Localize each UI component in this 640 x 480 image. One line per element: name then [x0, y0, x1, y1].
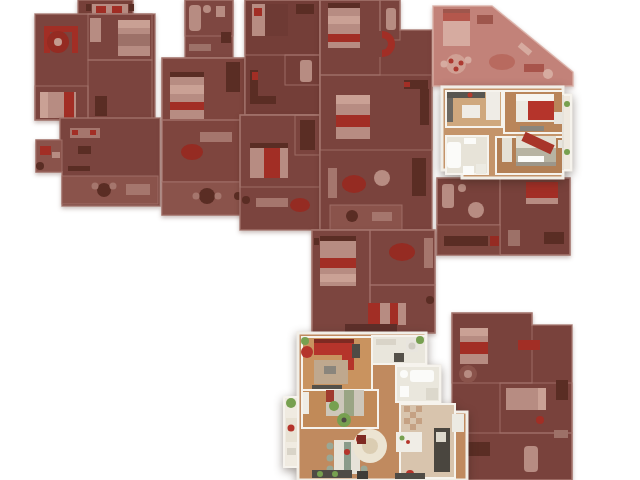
stove — [468, 93, 473, 98]
planter — [345, 324, 397, 332]
headboard — [516, 162, 556, 166]
side-table — [287, 448, 296, 455]
cabinet — [394, 353, 404, 362]
rug — [342, 175, 366, 193]
unit-left-col2[interactable] — [162, 58, 245, 215]
bed-linen — [170, 85, 204, 94]
blanket — [118, 34, 150, 46]
fridge — [490, 236, 499, 246]
headboard — [443, 9, 470, 13]
balcony-table — [199, 188, 215, 204]
pillow — [516, 94, 554, 101]
dresser — [518, 340, 540, 350]
tv-stand — [312, 385, 342, 389]
cushion — [288, 425, 295, 432]
plant — [564, 101, 570, 107]
bathtub — [189, 5, 201, 31]
rug — [489, 54, 515, 70]
bathtub — [410, 370, 434, 382]
chair — [327, 455, 334, 462]
pillow — [538, 388, 546, 410]
bathtub — [442, 184, 454, 208]
bathtub — [524, 446, 538, 472]
side-table — [357, 435, 366, 444]
plate — [449, 59, 454, 64]
dresser — [554, 430, 568, 438]
rug — [181, 144, 203, 160]
bed-linen — [460, 328, 488, 336]
appliance — [404, 82, 410, 87]
throw — [320, 258, 356, 268]
bed-linen — [320, 274, 356, 282]
unit-center-mid[interactable] — [240, 115, 320, 230]
bathtub — [386, 8, 396, 30]
plant — [416, 336, 424, 344]
cabinet — [468, 442, 490, 456]
shower — [426, 388, 438, 400]
headboard — [328, 3, 360, 8]
balcony-table — [97, 183, 111, 197]
plate — [344, 449, 350, 455]
lounge — [126, 184, 150, 195]
fridge — [452, 414, 464, 432]
chair — [193, 193, 200, 200]
throw — [328, 34, 360, 42]
kitchen-counter — [444, 236, 488, 246]
tile — [404, 418, 410, 424]
throw — [64, 92, 74, 118]
bathtub — [300, 60, 312, 82]
unit-center-lower[interactable] — [312, 230, 435, 333]
blanket — [264, 148, 280, 178]
nightstand — [86, 4, 91, 11]
plant — [317, 471, 323, 477]
shelf — [189, 44, 211, 51]
bed-linen — [526, 198, 558, 204]
kitchen-counter — [447, 98, 453, 122]
curved-sofa-cut — [366, 31, 382, 57]
unit-right-mid[interactable] — [437, 178, 570, 255]
pillow — [326, 390, 334, 402]
bed-linen — [328, 16, 360, 24]
unit-top-left[interactable] — [35, 14, 155, 120]
unit-left-lower[interactable] — [36, 118, 160, 206]
chair — [110, 183, 117, 190]
throw — [170, 102, 204, 110]
shelf — [376, 339, 396, 345]
chair — [92, 183, 99, 190]
pillow — [40, 92, 48, 118]
cabinet — [303, 392, 309, 414]
dresser — [95, 96, 107, 116]
kitchen-counter — [420, 89, 429, 125]
blanket — [336, 115, 370, 127]
plant — [400, 436, 405, 441]
desk — [352, 344, 360, 358]
blanket — [460, 342, 488, 354]
island — [462, 105, 480, 118]
kitchen-counter — [412, 158, 426, 196]
sofa — [72, 26, 78, 53]
sofa-back — [314, 339, 354, 343]
sideboard — [524, 64, 544, 72]
table — [468, 202, 484, 218]
toilet — [400, 386, 409, 397]
nightstand — [129, 4, 134, 11]
plant — [332, 471, 338, 477]
sofa — [328, 168, 337, 198]
tile — [404, 406, 410, 412]
coffee-table — [54, 38, 62, 46]
chair — [465, 57, 472, 64]
cushion — [90, 130, 96, 135]
washer — [476, 164, 486, 174]
wardrobe — [300, 120, 315, 150]
cabinet — [90, 18, 101, 42]
toilet — [216, 6, 225, 17]
sofa — [200, 132, 232, 142]
side-table — [52, 152, 60, 158]
washer — [221, 32, 231, 43]
appliance — [252, 72, 258, 80]
wardrobe — [486, 92, 500, 120]
tile — [410, 424, 416, 430]
sink — [464, 138, 476, 144]
cushion — [390, 303, 398, 325]
wardrobe — [544, 232, 564, 244]
unit-center-block[interactable] — [320, 0, 432, 230]
bench — [372, 212, 392, 221]
pillow — [254, 8, 262, 16]
wardrobe — [226, 62, 240, 92]
plant — [36, 162, 44, 170]
unit-highlighted-upper[interactable] — [442, 87, 571, 178]
tile — [416, 406, 422, 412]
stool — [543, 69, 553, 79]
table-runner — [344, 442, 351, 472]
unit-bottom-right[interactable] — [452, 313, 572, 480]
armchair — [301, 346, 313, 358]
sink — [458, 184, 466, 192]
headboard — [320, 236, 356, 241]
balcony-chair — [40, 146, 51, 155]
pillow — [96, 6, 106, 13]
closet — [296, 4, 314, 14]
plant — [426, 296, 434, 304]
desk — [556, 380, 568, 400]
coffee-table — [324, 366, 336, 374]
unit-highlighted-lower[interactable] — [284, 333, 467, 480]
throw — [344, 390, 354, 416]
bed-linen — [336, 95, 370, 104]
dresser — [554, 112, 562, 124]
kitchen-counter — [250, 96, 276, 104]
cushion — [368, 303, 380, 325]
plant — [329, 401, 339, 411]
pillow — [518, 156, 544, 162]
plate — [459, 61, 464, 66]
toilet — [463, 166, 474, 175]
washer-door — [409, 343, 416, 350]
chair — [441, 61, 448, 68]
table — [374, 170, 390, 186]
dresser — [477, 15, 493, 24]
unit-corner-pink[interactable] — [433, 6, 573, 86]
plant — [286, 398, 296, 408]
cushion — [72, 130, 78, 135]
sink — [203, 5, 211, 13]
plant — [564, 149, 570, 155]
chair — [327, 443, 334, 450]
unit-top-bath[interactable] — [185, 0, 233, 58]
bed — [170, 77, 204, 119]
plate — [406, 440, 410, 444]
tile — [410, 412, 416, 418]
bed-linen — [118, 20, 150, 28]
tv-stand — [68, 166, 90, 171]
sofa — [256, 198, 288, 207]
wardrobe — [502, 138, 512, 162]
chair — [215, 193, 222, 200]
plate — [454, 67, 459, 72]
pillow — [112, 6, 122, 13]
unit-center-top[interactable] — [245, 0, 320, 115]
tv-stand — [520, 126, 544, 131]
headboard — [250, 143, 288, 148]
blanket — [528, 98, 554, 120]
plant — [301, 337, 309, 345]
side-table — [357, 471, 368, 479]
floorplan-svg — [0, 0, 640, 480]
kitchen-counter — [447, 92, 485, 98]
pillow — [443, 13, 470, 21]
plate — [536, 416, 544, 424]
sofa — [424, 238, 433, 268]
nightstand — [314, 238, 319, 245]
dresser — [508, 230, 520, 246]
floorplan-canvas — [0, 0, 640, 480]
coffee-table — [78, 146, 91, 154]
appliance — [436, 432, 446, 442]
rug — [290, 198, 310, 212]
tile — [416, 418, 422, 424]
headboard — [170, 72, 204, 77]
plant — [242, 196, 250, 204]
planter — [395, 473, 425, 479]
balcony-table — [346, 210, 358, 222]
sink — [400, 370, 408, 378]
plant-pot — [342, 418, 347, 423]
rug — [389, 243, 415, 261]
bathtub — [447, 142, 461, 168]
round-chair-inner — [464, 370, 472, 378]
